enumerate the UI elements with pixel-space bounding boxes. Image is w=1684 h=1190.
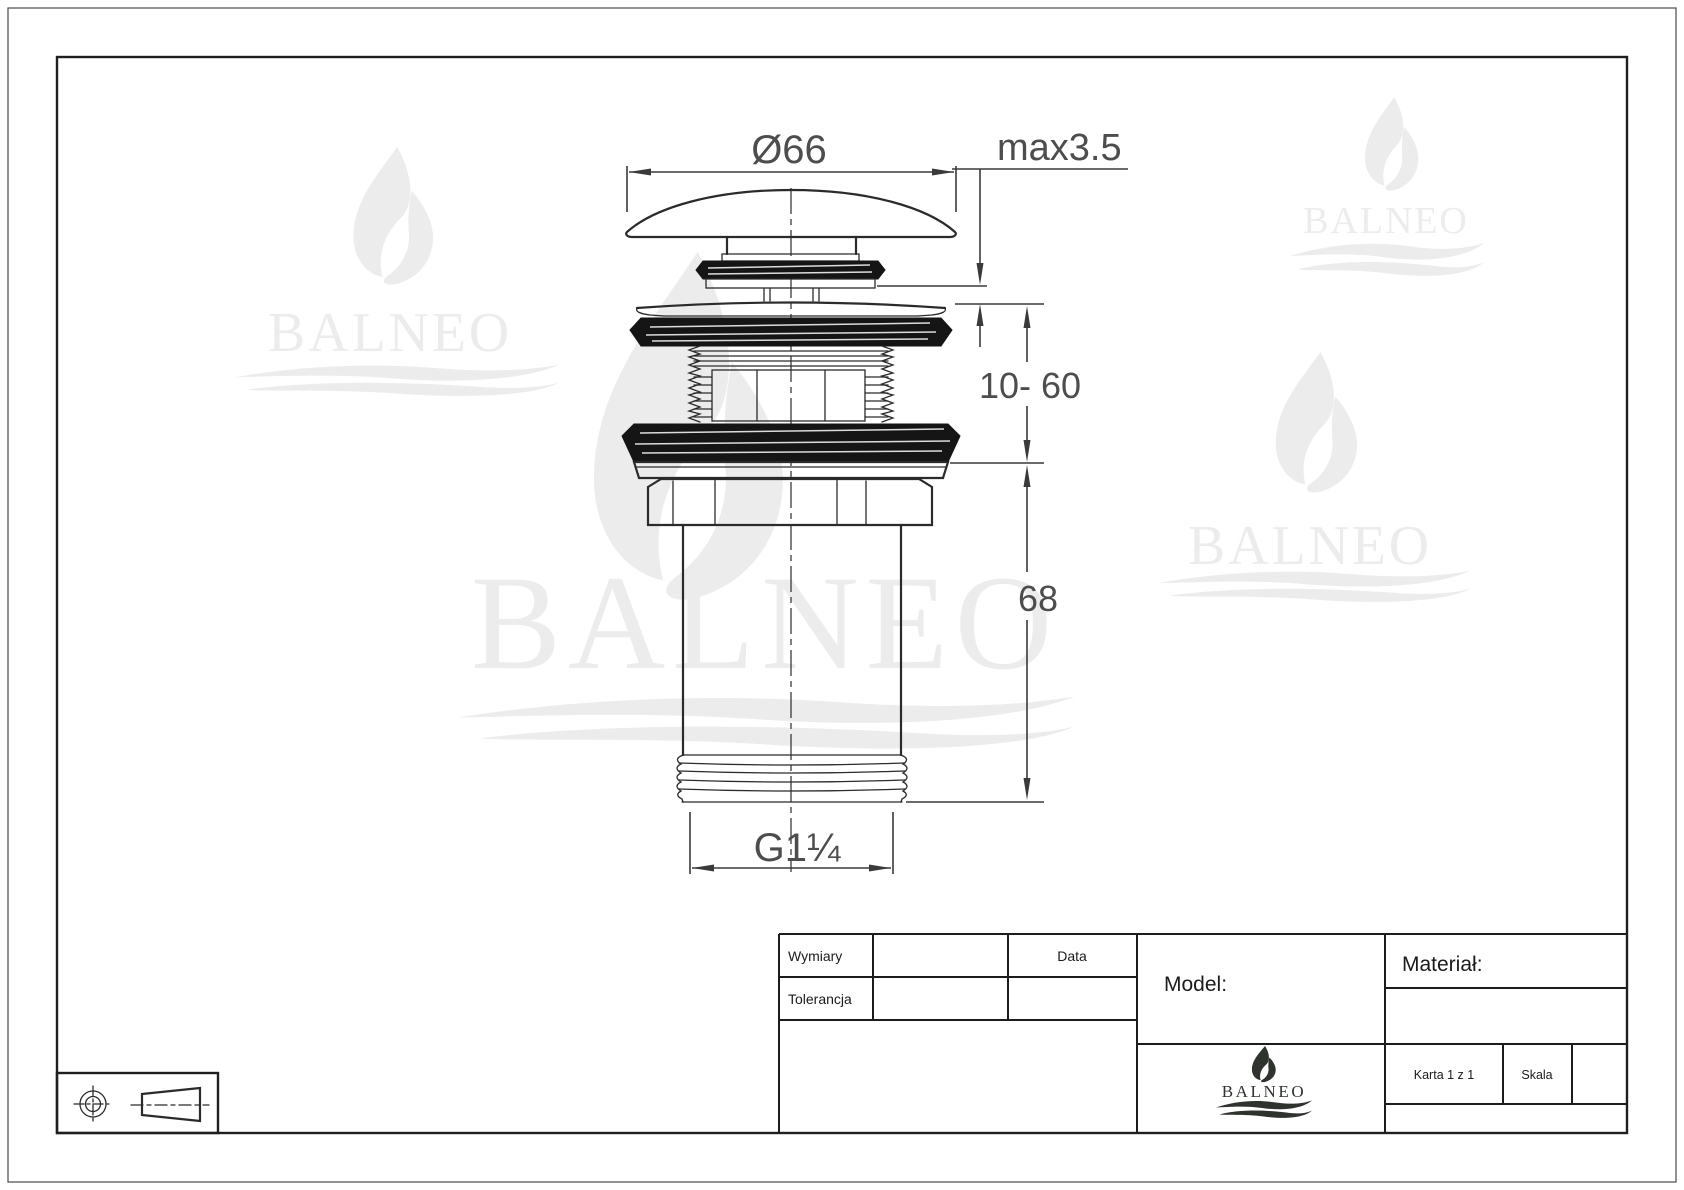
cap-clearance-label: max3.5 — [997, 127, 1122, 169]
balneo-wave-watermark-icon — [458, 697, 1075, 749]
tolerance-cell-label: Tolerancja — [788, 991, 852, 1007]
hex-nut — [648, 479, 932, 525]
seal-gasket-small — [696, 261, 885, 279]
diameter-label: Ø66 — [751, 128, 827, 172]
technical-drawing-sheet: BALNEO BALNEO BALNEO BALNEO — [0, 0, 1684, 1190]
balneo-wave-watermark-icon — [235, 365, 559, 396]
watermark-mid-right: BALNEO — [1158, 352, 1470, 602]
balneo-flame-watermark-icon — [353, 147, 433, 285]
scale-cell-label: Skala — [1521, 1068, 1552, 1082]
outlet-thread-right — [901, 755, 907, 802]
sheet-cell-label: Karta 1 z 1 — [1414, 1068, 1474, 1082]
date-cell-label: Data — [1057, 948, 1087, 964]
model-cell-label: Model: — [1164, 973, 1227, 996]
thread-right-edge — [882, 346, 893, 422]
watermark-text: BALNEO — [1188, 515, 1432, 577]
balneo-flame-logo-icon — [1252, 1046, 1276, 1082]
watermark-text: BALNEO — [471, 549, 1059, 698]
drawing-canvas: BALNEO BALNEO BALNEO BALNEO — [0, 0, 1684, 1190]
watermark-text: BALNEO — [268, 302, 512, 364]
outlet-thread-left — [677, 755, 683, 802]
balneo-wave-logo-icon — [1216, 1101, 1312, 1118]
balneo-flame-watermark-icon — [1276, 352, 1357, 492]
clamping-range-label: 10- 60 — [979, 365, 1081, 406]
dimension-clamping-range: 10- 60 — [950, 306, 1081, 463]
body-length-label: 68 — [1018, 578, 1058, 619]
balneo-logo-text: BALNEO — [1222, 1082, 1307, 1101]
balneo-wave-watermark-icon — [1290, 243, 1484, 276]
first-angle-projection-symbol — [57, 1073, 218, 1133]
watermark-text: BALNEO — [1303, 200, 1469, 242]
balneo-flame-watermark-icon — [1365, 97, 1418, 191]
material-cell-label: Materiał: — [1402, 953, 1483, 976]
title-block: Wymiary Tolerancja Data Model: Materiał:… — [779, 934, 1627, 1133]
balneo-logo: BALNEO — [1216, 1046, 1312, 1118]
dimensions-cell-label: Wymiary — [788, 948, 842, 964]
watermark-top-left: BALNEO — [235, 147, 559, 396]
thread-size-label: G1¼ — [754, 826, 841, 870]
watermark-top-right: BALNEO — [1290, 97, 1484, 276]
